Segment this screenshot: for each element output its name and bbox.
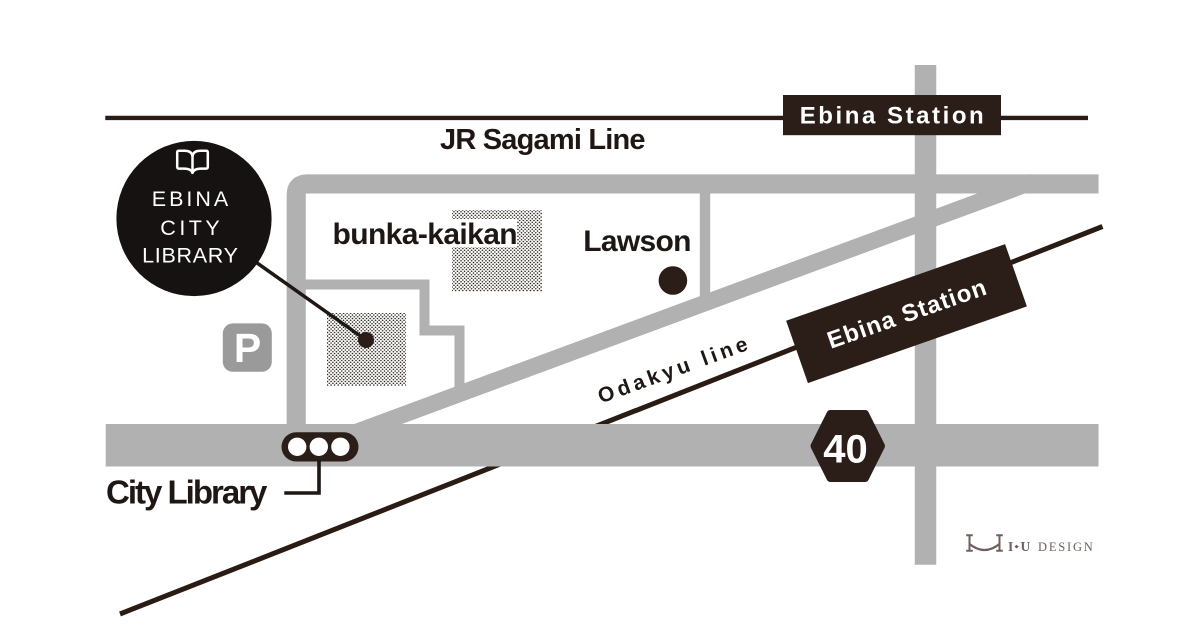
svg-text:40: 40 — [823, 428, 868, 472]
svg-text:EBINA: EBINA — [152, 187, 232, 211]
svg-text:P: P — [234, 325, 261, 371]
svg-text:DESIGN: DESIGN — [1038, 540, 1095, 554]
svg-text:CITY: CITY — [160, 216, 223, 240]
svg-text:U: U — [1021, 539, 1031, 554]
svg-text:I: I — [1008, 539, 1013, 554]
svg-text:Lawson: Lawson — [583, 225, 690, 258]
svg-text:City Library: City Library — [106, 473, 268, 510]
svg-text:Ebina Station: Ebina Station — [800, 103, 987, 130]
svg-text:bunka-kaikan: bunka-kaikan — [333, 218, 518, 251]
svg-text:JR Sagami Line: JR Sagami Line — [440, 124, 645, 156]
svg-text:LIBRARY: LIBRARY — [142, 244, 239, 268]
